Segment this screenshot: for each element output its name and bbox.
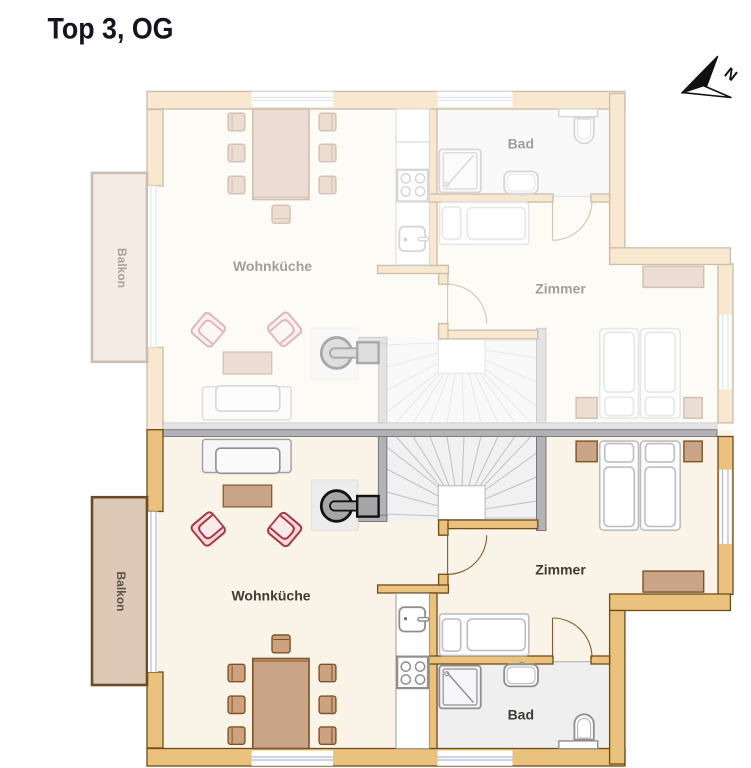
svg-text:Wohnküche: Wohnküche — [233, 258, 312, 274]
svg-text:Wohnküche: Wohnküche — [231, 588, 310, 604]
svg-text:Bad: Bad — [508, 707, 534, 723]
svg-text:Balkon: Balkon — [115, 248, 129, 288]
svg-text:N: N — [721, 65, 740, 85]
svg-text:Bad: Bad — [508, 136, 534, 152]
svg-text:Zimmer: Zimmer — [535, 562, 586, 578]
svg-text:Balkon: Balkon — [114, 571, 128, 611]
svg-text:Zimmer: Zimmer — [535, 281, 586, 297]
svg-text:Top 3, OG: Top 3, OG — [48, 13, 174, 46]
